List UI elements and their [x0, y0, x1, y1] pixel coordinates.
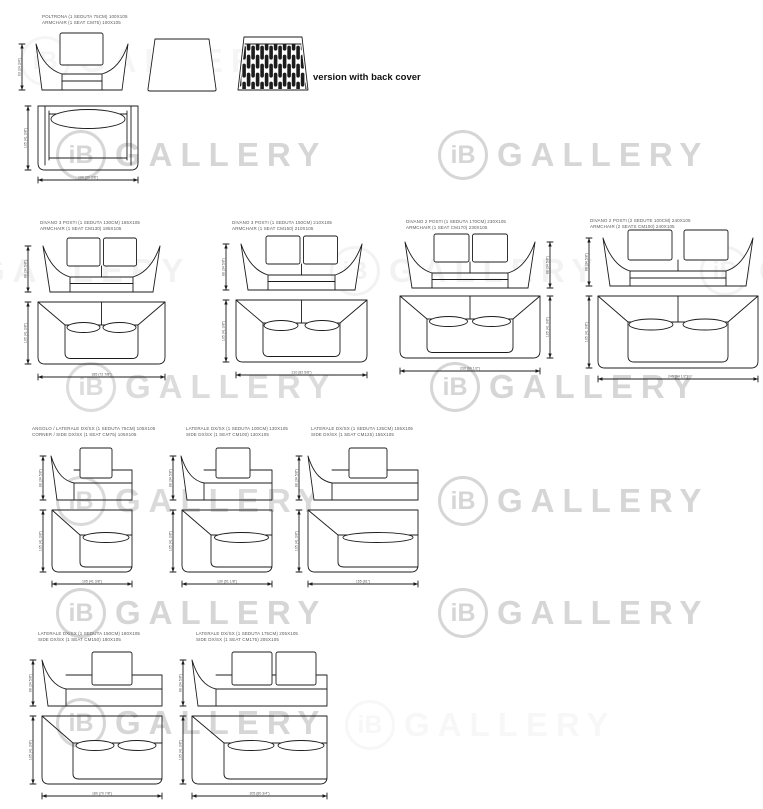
- left-arm: [192, 660, 216, 706]
- plan-drawing: [38, 106, 138, 170]
- product-label-corner-105: ANGOLO / LATERALE DX/SX (1 SEDUTA 75CM) …: [32, 426, 202, 438]
- dimension-depth: 105 (41 3/8"): [222, 300, 230, 362]
- height-dim-label: 88 (34 5/8"): [169, 469, 173, 487]
- front-elevation: [43, 238, 160, 292]
- corner-105-drawings: 88 (34 5/8") 105 (41 3/8") 105 (41 3/8"): [36, 446, 146, 592]
- dimension-width: 210 (82 5/8"): [236, 371, 367, 379]
- left-arm: [43, 246, 70, 292]
- side-155-drawings: 88 (34 5/8") 105 (41 3/8") 155 (61"): [292, 446, 432, 592]
- left-arm: [241, 244, 268, 290]
- dimension-depth: 105 (41 3/8"): [39, 510, 47, 572]
- watermark: iBGALLERY: [345, 700, 616, 750]
- product-label-side-205: LATERALE DX/SX (1 SEDUTA 175CM) 205X105 …: [196, 631, 366, 643]
- front-elevation: [603, 230, 753, 286]
- width-dim-label: 180 (70 7/8"): [92, 792, 112, 796]
- dimension-depth: 105 (41 3/8"): [179, 716, 187, 784]
- depth-dim-label: 105 (41 3/8"): [24, 128, 28, 148]
- back-cushion: [216, 448, 250, 478]
- right-arm: [508, 242, 535, 288]
- product-label-side-180: LATERALE DX/SX (1 SEDUTA 150CM) 180X105 …: [38, 631, 208, 643]
- label-line2: ARMCHAIR (2 SEATS CM100) 240X105: [590, 224, 760, 230]
- side-180-drawings: 88 (34 5/8") 105 (41 3/8") 180 (70 7/8"): [26, 650, 176, 802]
- dimension-height: 88 (34 5/8"): [179, 660, 187, 706]
- side-outline: [148, 39, 216, 91]
- width-dim-label: 240 (94 1/2"): [668, 375, 688, 379]
- side-elevation: [308, 448, 418, 500]
- ib-logo-icon: iB: [345, 700, 395, 750]
- left-arm: [405, 242, 432, 288]
- plan-view: [38, 302, 165, 364]
- side-elevation: [192, 652, 327, 706]
- left-arm: [308, 456, 332, 500]
- left-arm: [42, 660, 66, 706]
- dimension-width: 130 (51 1/8"): [182, 580, 272, 588]
- label-line2: ARMCHAIR (1 SEAT CM150) 210X105: [232, 226, 402, 232]
- dimension-height: 88 (34 5/8"): [222, 244, 230, 290]
- plan-view: [42, 716, 162, 784]
- dimension-height: 88 (34 5/8"): [585, 238, 593, 286]
- side-130-drawings: 88 (34 5/8") 105 (41 3/8") 130 (51 1/8"): [166, 446, 286, 592]
- back-cushion: [349, 448, 387, 478]
- back-cushion: [104, 238, 137, 266]
- seat-cushion: [103, 323, 136, 333]
- label-line2: CORNER / SIDE DX/SX (1 SEAT CM75) 105X10…: [32, 432, 202, 438]
- label-line2: SIDE DX/SX (1 SEAT CM175) 205X105: [196, 637, 366, 643]
- label-line2: ARMCHAIR (1 SEAT CM75) 100X105: [42, 20, 212, 26]
- watermark: iBGALLERY: [438, 588, 709, 638]
- dimension-width: 105 (41 3/8"): [52, 580, 132, 588]
- seat-cushion: [215, 533, 269, 543]
- product-label-armchair: POLTRONA (1 SEDUTA 75CM) 100X105 ARMCHAI…: [42, 14, 212, 26]
- width-dim-label: 155 (61"): [356, 580, 370, 584]
- seat-cushion: [430, 317, 468, 327]
- height-dim-label: 88 (34 5/8"): [24, 260, 28, 278]
- weave-pattern: [240, 44, 307, 89]
- dimension-depth: 105 (41 3/8"): [295, 510, 303, 572]
- height-dim-label: 88 (34 5/8"): [179, 674, 183, 692]
- depth-dim-label: 105 (41 3/8"): [29, 740, 33, 760]
- plan-view: [598, 296, 758, 368]
- left-arm: [51, 456, 74, 500]
- plan-view: [308, 510, 418, 572]
- armchair-front-drawing: [36, 33, 128, 90]
- depth-dim-label: 105 (41 3/8"): [179, 740, 183, 760]
- seat-cushion: [118, 741, 156, 751]
- plan-view: [192, 716, 327, 784]
- dimension-height: 88 (34 5/8"): [39, 456, 47, 500]
- watermark: iBGALLERY: [438, 130, 709, 180]
- side-elevation: [51, 448, 132, 500]
- height-dim-label: 88 (34 5/8"): [29, 674, 33, 692]
- front-elevation: [405, 234, 535, 288]
- back-cushion: [304, 236, 338, 264]
- plan-view: [182, 510, 272, 572]
- sofa-210-drawings: 88 (34 5/8") 105 (41 3/8") 210 (82 5/8"): [218, 234, 380, 384]
- back-cushion: [266, 236, 300, 264]
- ib-logo-icon: iB: [438, 588, 488, 638]
- back-cushion: [67, 238, 100, 266]
- dimension-width: 185 (72 7/8"): [38, 373, 165, 381]
- plan-view: [400, 296, 540, 358]
- back-cushion: [473, 234, 508, 262]
- dimension-width: 230 (90 1/2"): [400, 367, 540, 375]
- right-arm: [335, 244, 362, 290]
- width-dim-label: 210 (82 5/8"): [291, 371, 311, 375]
- dimension-height: 88 (34 5/8"): [29, 660, 37, 706]
- width-dim-label: 230 (90 1/2"): [460, 367, 480, 371]
- right-arm: [726, 238, 753, 286]
- dimension-width: 240 (94 1/2"): [598, 375, 758, 383]
- ib-logo-icon: iB: [438, 130, 488, 180]
- dimension-height: 88 (34 5/8"): [24, 246, 32, 292]
- label-line2: ARMCHAIR (1 SEAT CM170) 230X105: [406, 225, 576, 231]
- dimension-depth: 105 (41 3/8"): [24, 106, 32, 170]
- dimension-width: 180 (70 7/8"): [42, 792, 162, 800]
- spec-sheet-page: iBGALLERY iBGALLERY iBGALLERY iBGALLERY …: [0, 0, 763, 809]
- armchair-front-elevation: 63 (24 3/4"): [14, 32, 136, 96]
- seat-cushion: [473, 317, 511, 327]
- plan-view: [52, 510, 132, 572]
- dimension-depth: 105 (41 3/8"): [24, 302, 32, 364]
- dimension-height: 88 (34 5/8"): [169, 456, 177, 500]
- sofa-185-drawings: 88 (34 5/8") 105 (41 3/8") 185 (72 7/8"): [20, 236, 178, 386]
- back-cushion: [628, 230, 672, 260]
- dimension-height: 88 (34 5/8"): [546, 242, 554, 288]
- height-dim-label: 88 (34 5/8"): [222, 258, 226, 276]
- product-label-sofa-230: DIVANO 2 POSTI (1 SEDUTA 170CM) 230X105 …: [406, 219, 576, 231]
- dimension-depth: 105 (41 3/8"): [29, 716, 37, 784]
- height-dim-label: 63 (24 3/4"): [18, 58, 22, 76]
- depth-dim-label: 105 (41 3/8"): [585, 322, 589, 342]
- sofa-240-drawings: 88 (34 5/8") 105 (41 3/8") 240 (94 1/2"): [582, 228, 763, 384]
- seat-cushion: [278, 741, 324, 751]
- width-dim-label: 130 (51 1/8"): [217, 580, 237, 584]
- back-cushion: [232, 652, 272, 685]
- left-arm: [36, 44, 62, 90]
- armchair-back-view-cover: [237, 36, 309, 93]
- dimension-width: 205 (80 3/4"): [192, 792, 327, 800]
- armchair-plan-view: 105 (41 3/8") 100 (39 3/8"): [20, 102, 152, 186]
- seat-cushion: [264, 321, 298, 331]
- height-dim-label: 88 (34 5/8"): [39, 469, 43, 487]
- seat-cushion: [343, 533, 413, 543]
- right-arm: [133, 246, 160, 292]
- left-arm: [181, 456, 204, 500]
- label-line2: SIDE DX/SX (1 SEAT CM125) 155X105: [311, 432, 481, 438]
- right-arm: [102, 44, 128, 90]
- depth-dim-label: 105 (41 3/8"): [39, 531, 43, 551]
- sofa-230-drawings: 88 (34 5/8") 105 (41 3/8") 230 (90 1/2"): [396, 232, 558, 380]
- height-dim-label: 88 (34 5/8"): [546, 256, 550, 274]
- product-label-sofa-210: DIVANO 3 POSTI (1 SEDUTA 150CM) 210X105 …: [232, 220, 402, 232]
- side-205-drawings: 88 (34 5/8") 105 (41 3/8") 205 (80 3/4"): [176, 650, 341, 802]
- seat-cushion: [83, 533, 129, 543]
- dimension-depth: 105 (41 3/8"): [585, 296, 593, 368]
- back-cushion: [434, 234, 469, 262]
- back-cushion: [80, 448, 112, 478]
- depth-dim-label: 105 (41 3/8"): [24, 323, 28, 343]
- seat-cushion: [51, 110, 125, 129]
- product-label-side-155: LATERALE DX/SX (1 SEDUTA 125CM) 155X105 …: [311, 426, 481, 438]
- label-line2: SIDE DX/SX (1 SEAT CM150) 180X105: [38, 637, 208, 643]
- plan-view: [236, 300, 367, 362]
- width-dim-label: 105 (41 3/8"): [82, 580, 102, 584]
- dimension-height: 63 (24 3/4"): [18, 44, 26, 90]
- depth-dim-label: 105 (41 3/8"): [295, 531, 299, 551]
- seat-cushion: [67, 323, 100, 333]
- side-elevation: [181, 448, 272, 500]
- seat-cushion: [228, 741, 274, 751]
- back-cushion: [92, 652, 132, 685]
- depth-dim-label: 105 (41 3/8"): [222, 321, 226, 341]
- product-label-sofa-185: DIVANO 3 POSTI (1 SEDUTA 130CM) 185X105 …: [40, 220, 210, 232]
- front-elevation: [241, 236, 362, 290]
- seat-cushion: [76, 741, 114, 751]
- depth-dim-label: 105 (41 3/8"): [169, 531, 173, 551]
- back-cushion: [60, 33, 103, 65]
- width-dim-label: 100 (39 3/8"): [78, 176, 98, 180]
- dimension-width: 100 (39 3/8"): [38, 176, 138, 184]
- dimension-width: 155 (61"): [308, 580, 418, 588]
- height-dim-label: 88 (34 5/8"): [585, 253, 589, 271]
- dimension-depth: 105 (41 3/8"): [169, 510, 177, 572]
- seat-cushion: [305, 321, 339, 331]
- seat-cushion: [629, 319, 673, 330]
- height-dim-label: 88 (34 5/8"): [295, 469, 299, 487]
- width-dim-label: 185 (72 7/8"): [91, 373, 111, 377]
- dimension-height: 88 (34 5/8"): [295, 456, 303, 500]
- product-label-sofa-240: DIVANO 2 POSTI (2 SEDUTE 100CM) 240X105 …: [590, 218, 760, 230]
- ib-logo-icon: iB: [438, 476, 488, 526]
- dimension-depth: 105 (41 3/8"): [546, 296, 554, 358]
- left-arm: [603, 238, 630, 286]
- watermark: iBGALLERY: [438, 476, 709, 526]
- depth-dim-label: 105 (41 3/8"): [546, 317, 550, 337]
- seat-cushion: [683, 319, 727, 330]
- back-cover-note: version with back cover: [313, 72, 421, 83]
- width-dim-label: 205 (80 3/4"): [249, 792, 269, 796]
- back-cushion: [684, 230, 728, 260]
- back-cushion: [276, 652, 316, 685]
- label-line2: ARMCHAIR (1 SEAT CM130) 185X105: [40, 226, 210, 232]
- armchair-side-view: [146, 38, 218, 92]
- side-elevation: [42, 652, 162, 706]
